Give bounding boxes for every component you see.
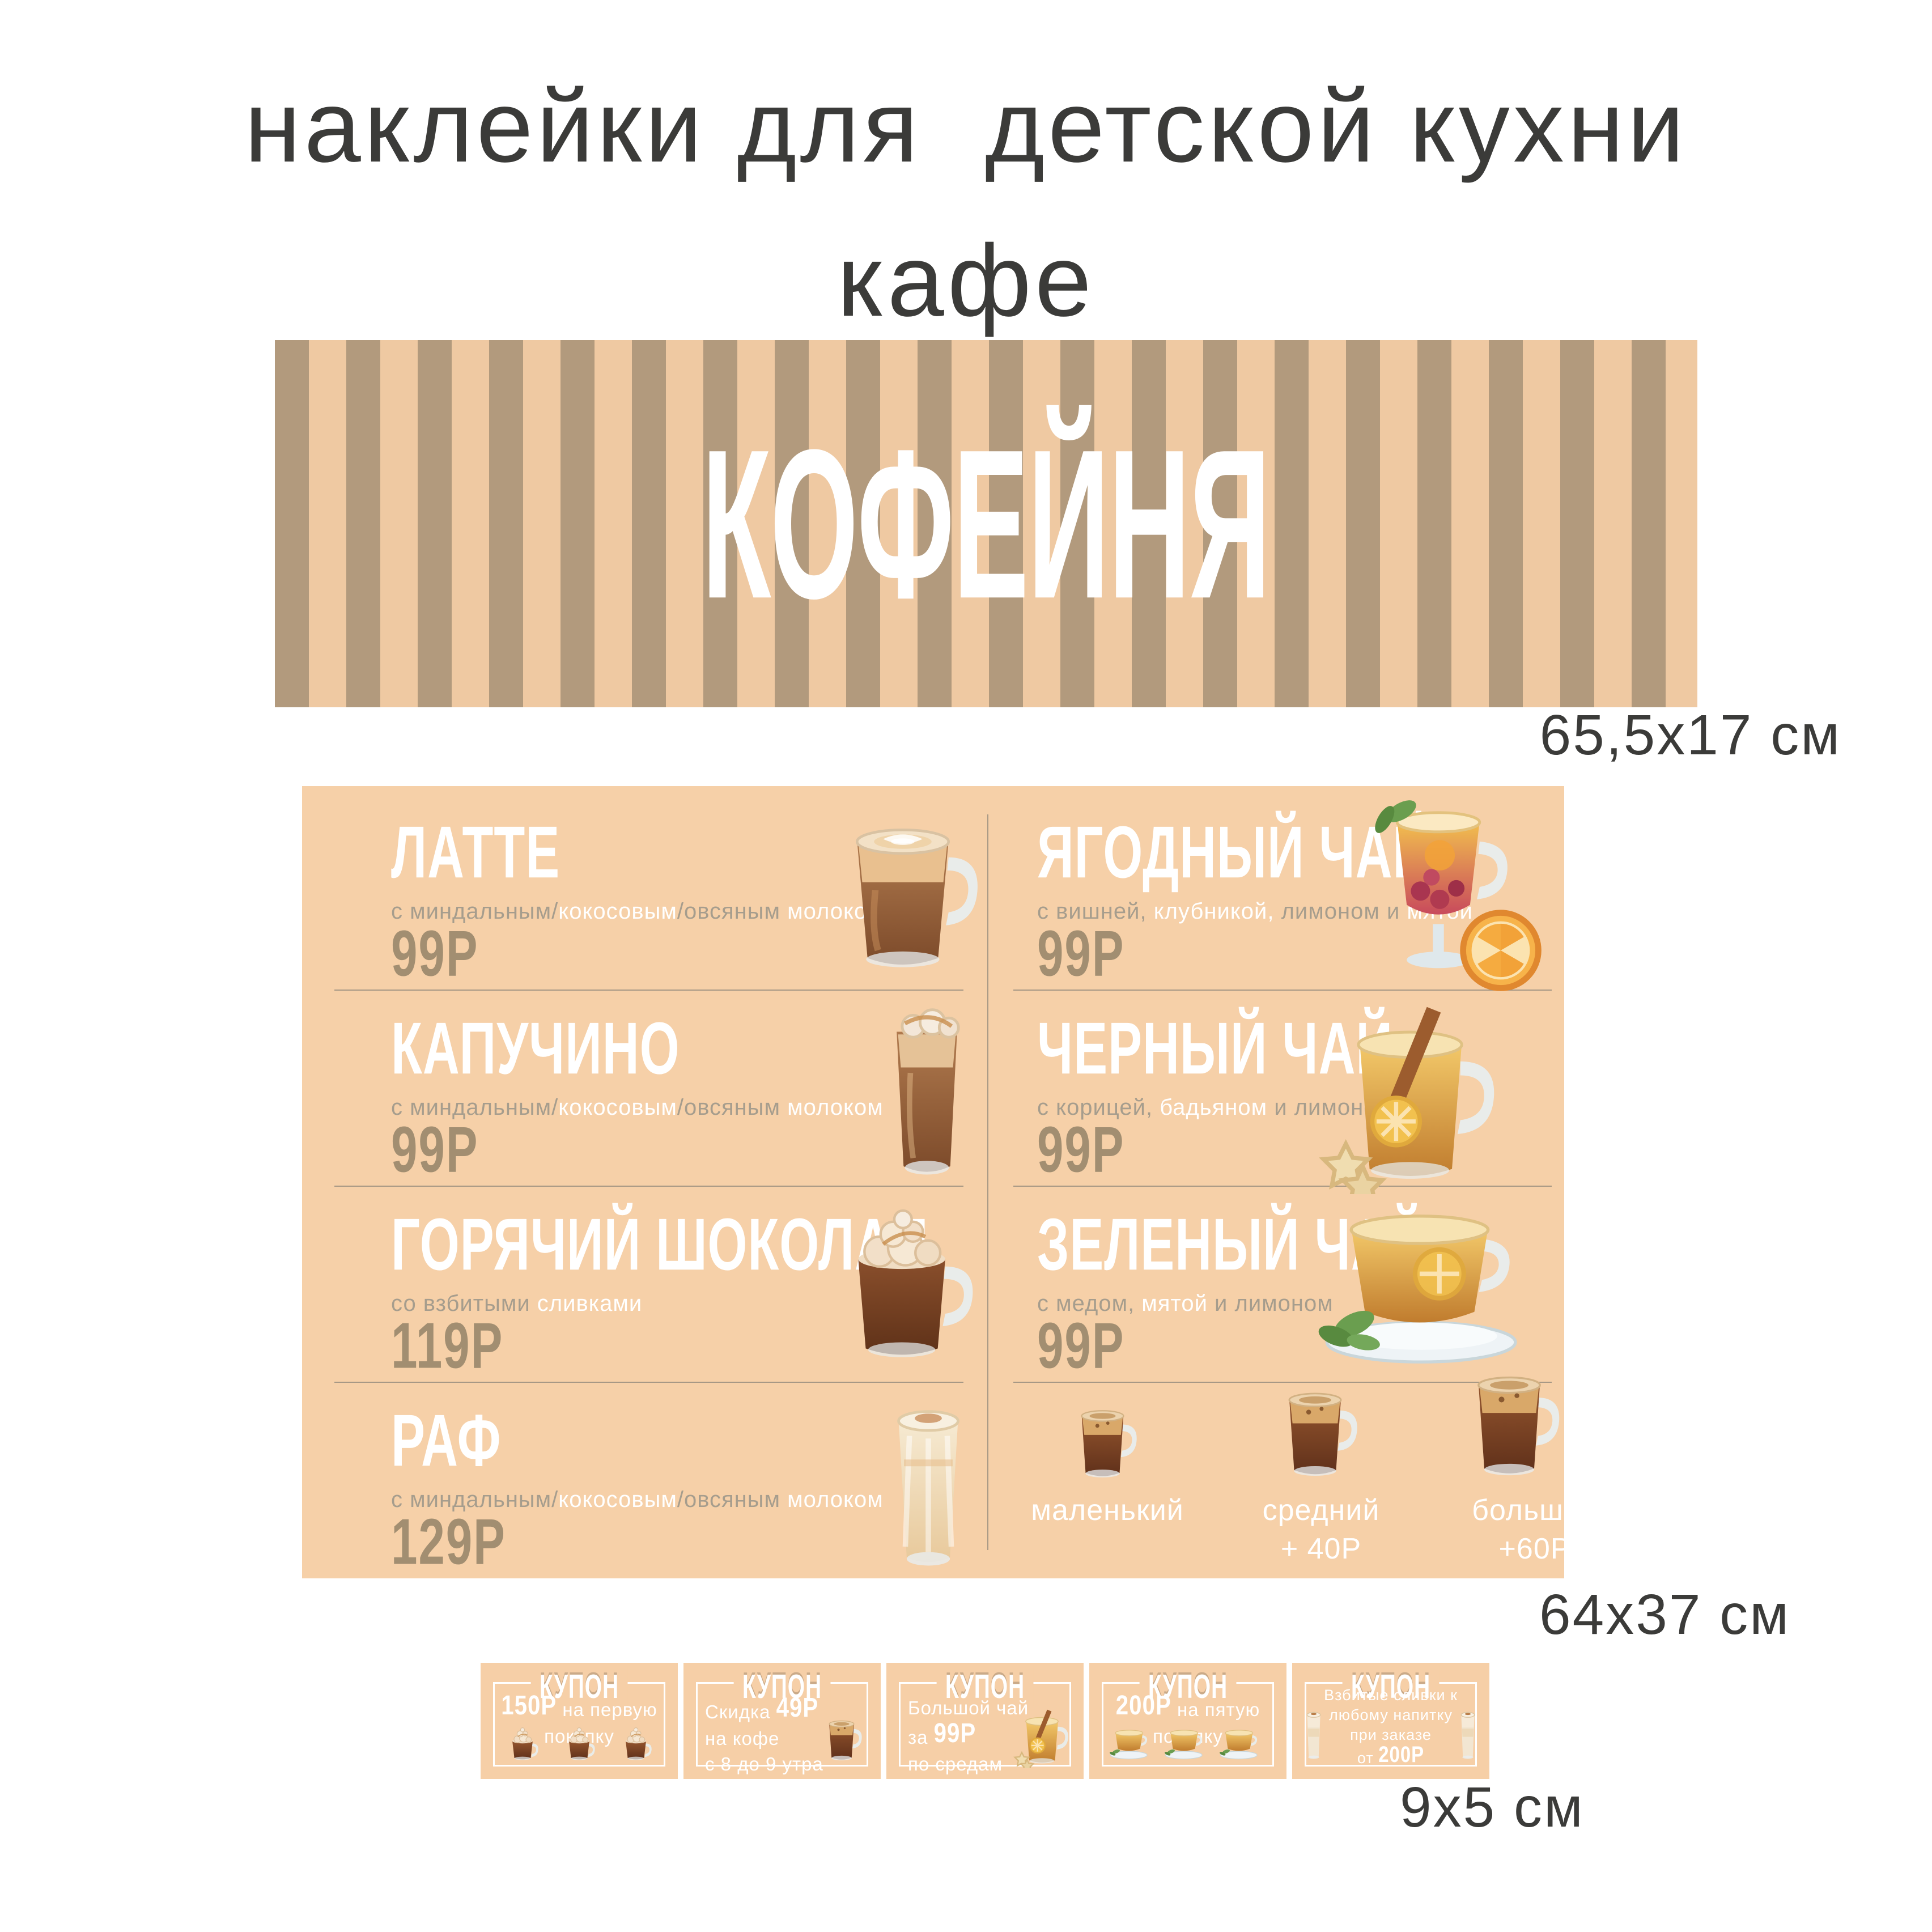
cup-size-label: средний [1263, 1492, 1380, 1530]
menu-board-sticker: ЛАТТЕс миндальным/кокосовым/овсяным моло… [302, 786, 1564, 1578]
coupon-offer-amount: 150Р [501, 1687, 557, 1724]
coupon-offer-segment: с 8 до 9 утра [705, 1753, 823, 1774]
coupon-offer-segment: на кофе [705, 1728, 779, 1749]
coupon-offer-segment: Взбитые сливки к [1324, 1687, 1458, 1704]
coupon-offer-line: Взбитые сливки к [1322, 1685, 1460, 1705]
coupon-drink-illustration [1158, 1726, 1211, 1761]
menu-item-desc-part: /овсяным [677, 1095, 787, 1120]
coupon-drink-illustration [1103, 1726, 1156, 1761]
menu-item-desc-part: кокосовым [558, 899, 677, 924]
coupon-offer-line: от 200Р [1322, 1745, 1460, 1769]
coupon-card: КУПОН200Р на пятую покупку [1089, 1663, 1286, 1779]
coupon-drink-illustration [502, 1722, 543, 1763]
coupon-drink-illustration [1012, 1707, 1073, 1768]
coffee-shop-banner-sticker: КОФЕЙНЯ [275, 340, 1697, 707]
coupon-drink-illustration [559, 1722, 600, 1763]
cup-size-label: маленький [1031, 1492, 1184, 1530]
menu-item-price: 99Р [1037, 1112, 1124, 1187]
menu-item-desc-part: бадьяном [1160, 1095, 1274, 1120]
coupon-drink-illustration [1301, 1701, 1326, 1767]
menu-item-price: 99Р [391, 1112, 478, 1187]
coupon-offer-segment: Скидка [705, 1701, 776, 1722]
coupon-card: КУПОН150Р на первую покупку [481, 1663, 678, 1779]
coupon-offer-amount: 200Р [1378, 1740, 1424, 1769]
menu-item-desc-part: сливками [537, 1291, 642, 1316]
menu-item-desc-part: кокосовым [558, 1487, 677, 1512]
coupon-size-label: 9х5 см [1400, 1775, 1585, 1840]
menu-item-price: 129Р [391, 1504, 506, 1579]
cup-size-option: большой+60Р [1472, 1492, 1598, 1568]
menu-row-divider [334, 1186, 963, 1187]
cup-size-option: маленький [1031, 1492, 1184, 1530]
cup-size-option: средний+ 40Р [1263, 1492, 1380, 1568]
menu-item-desc-part: мятой [1141, 1291, 1215, 1316]
coupon-offer-segment: по средам [908, 1753, 1003, 1774]
orange-slice-illustration [1458, 908, 1543, 993]
page-title-line1: наклейки для детской кухни [0, 68, 1932, 185]
menu-item-price: 99Р [391, 916, 478, 991]
latte-glass-illustration [815, 812, 991, 982]
menu-row-divider [334, 990, 963, 991]
coupon-offer-amount: 99Р [934, 1715, 976, 1752]
menu-row-divider [334, 1382, 963, 1383]
green-tea-cup-illustration [1297, 1205, 1552, 1373]
coupon-card: КУПОНСкидка 49Р на кофес 8 до 9 утра [683, 1663, 881, 1779]
menu-item-name: РАФ [391, 1399, 501, 1484]
coupon-offer-amount: 49Р [776, 1689, 819, 1726]
menu-item-name: КАПУЧИНО [391, 1007, 680, 1092]
banner-title: КОФЕЙНЯ [702, 402, 1270, 646]
menu-item-price: 99Р [1037, 916, 1124, 991]
coupon-offer-segment: любому напитку [1329, 1706, 1453, 1723]
black-tea-glass-illustration [1300, 999, 1526, 1194]
coupon-drink-illustration [615, 1722, 656, 1763]
page-title-line2: кафе [0, 222, 1932, 339]
product-poster-page: { "page": { "title_line1": "наклейки для… [0, 0, 1932, 1932]
coupon-drink-illustration [818, 1711, 865, 1765]
menu-item-desc-part: /овсяным [677, 899, 787, 924]
coupon-offer-text: Взбитые сливки клюбому напиткупри заказе… [1322, 1685, 1460, 1769]
cup-size-surcharge: + 40Р [1263, 1530, 1380, 1569]
coupon-offer-amount: 200Р [1116, 1687, 1171, 1724]
coupon-card: КУПОНВзбитые сливки клюбому напиткупри з… [1292, 1663, 1489, 1779]
raf-glass-illustration [872, 1395, 985, 1571]
coupon-card: КУПОНБольшой чай за 99Рпо средам [886, 1663, 1084, 1779]
coupon-offer-segment: от [1357, 1750, 1378, 1767]
menu-item-name: ЛАТТЕ [391, 810, 560, 895]
hot-chocolate-mug-illustration [823, 1203, 985, 1373]
cup-size-surcharge: +60Р [1472, 1530, 1598, 1569]
coupon-drink-illustration [1213, 1726, 1266, 1761]
banner-size-label: 65,5х17 см [1540, 703, 1841, 768]
menu-item-desc-part: /овсяным [677, 1487, 787, 1512]
coupon-drink-illustration [1455, 1701, 1480, 1767]
menu-item-desc-part: клубникой, [1154, 899, 1281, 924]
espresso-cup-medium-illustration [1263, 1377, 1368, 1481]
espresso-cup-small-illustration [1056, 1397, 1149, 1482]
cappuccino-glass-illustration [869, 1004, 985, 1183]
menu-item-price: 119Р [391, 1308, 503, 1383]
menu-item-price: 99Р [1037, 1308, 1124, 1383]
coupon-offer-line: любому напитку [1322, 1705, 1460, 1725]
cup-size-label: большой [1472, 1492, 1598, 1530]
espresso-cup-large-illustration [1450, 1357, 1569, 1482]
menu-item-desc-part: кокосовым [558, 1095, 677, 1120]
menu-size-label: 64х37 см [1539, 1582, 1790, 1647]
menu-item-desc-part: молоком [787, 1487, 884, 1512]
